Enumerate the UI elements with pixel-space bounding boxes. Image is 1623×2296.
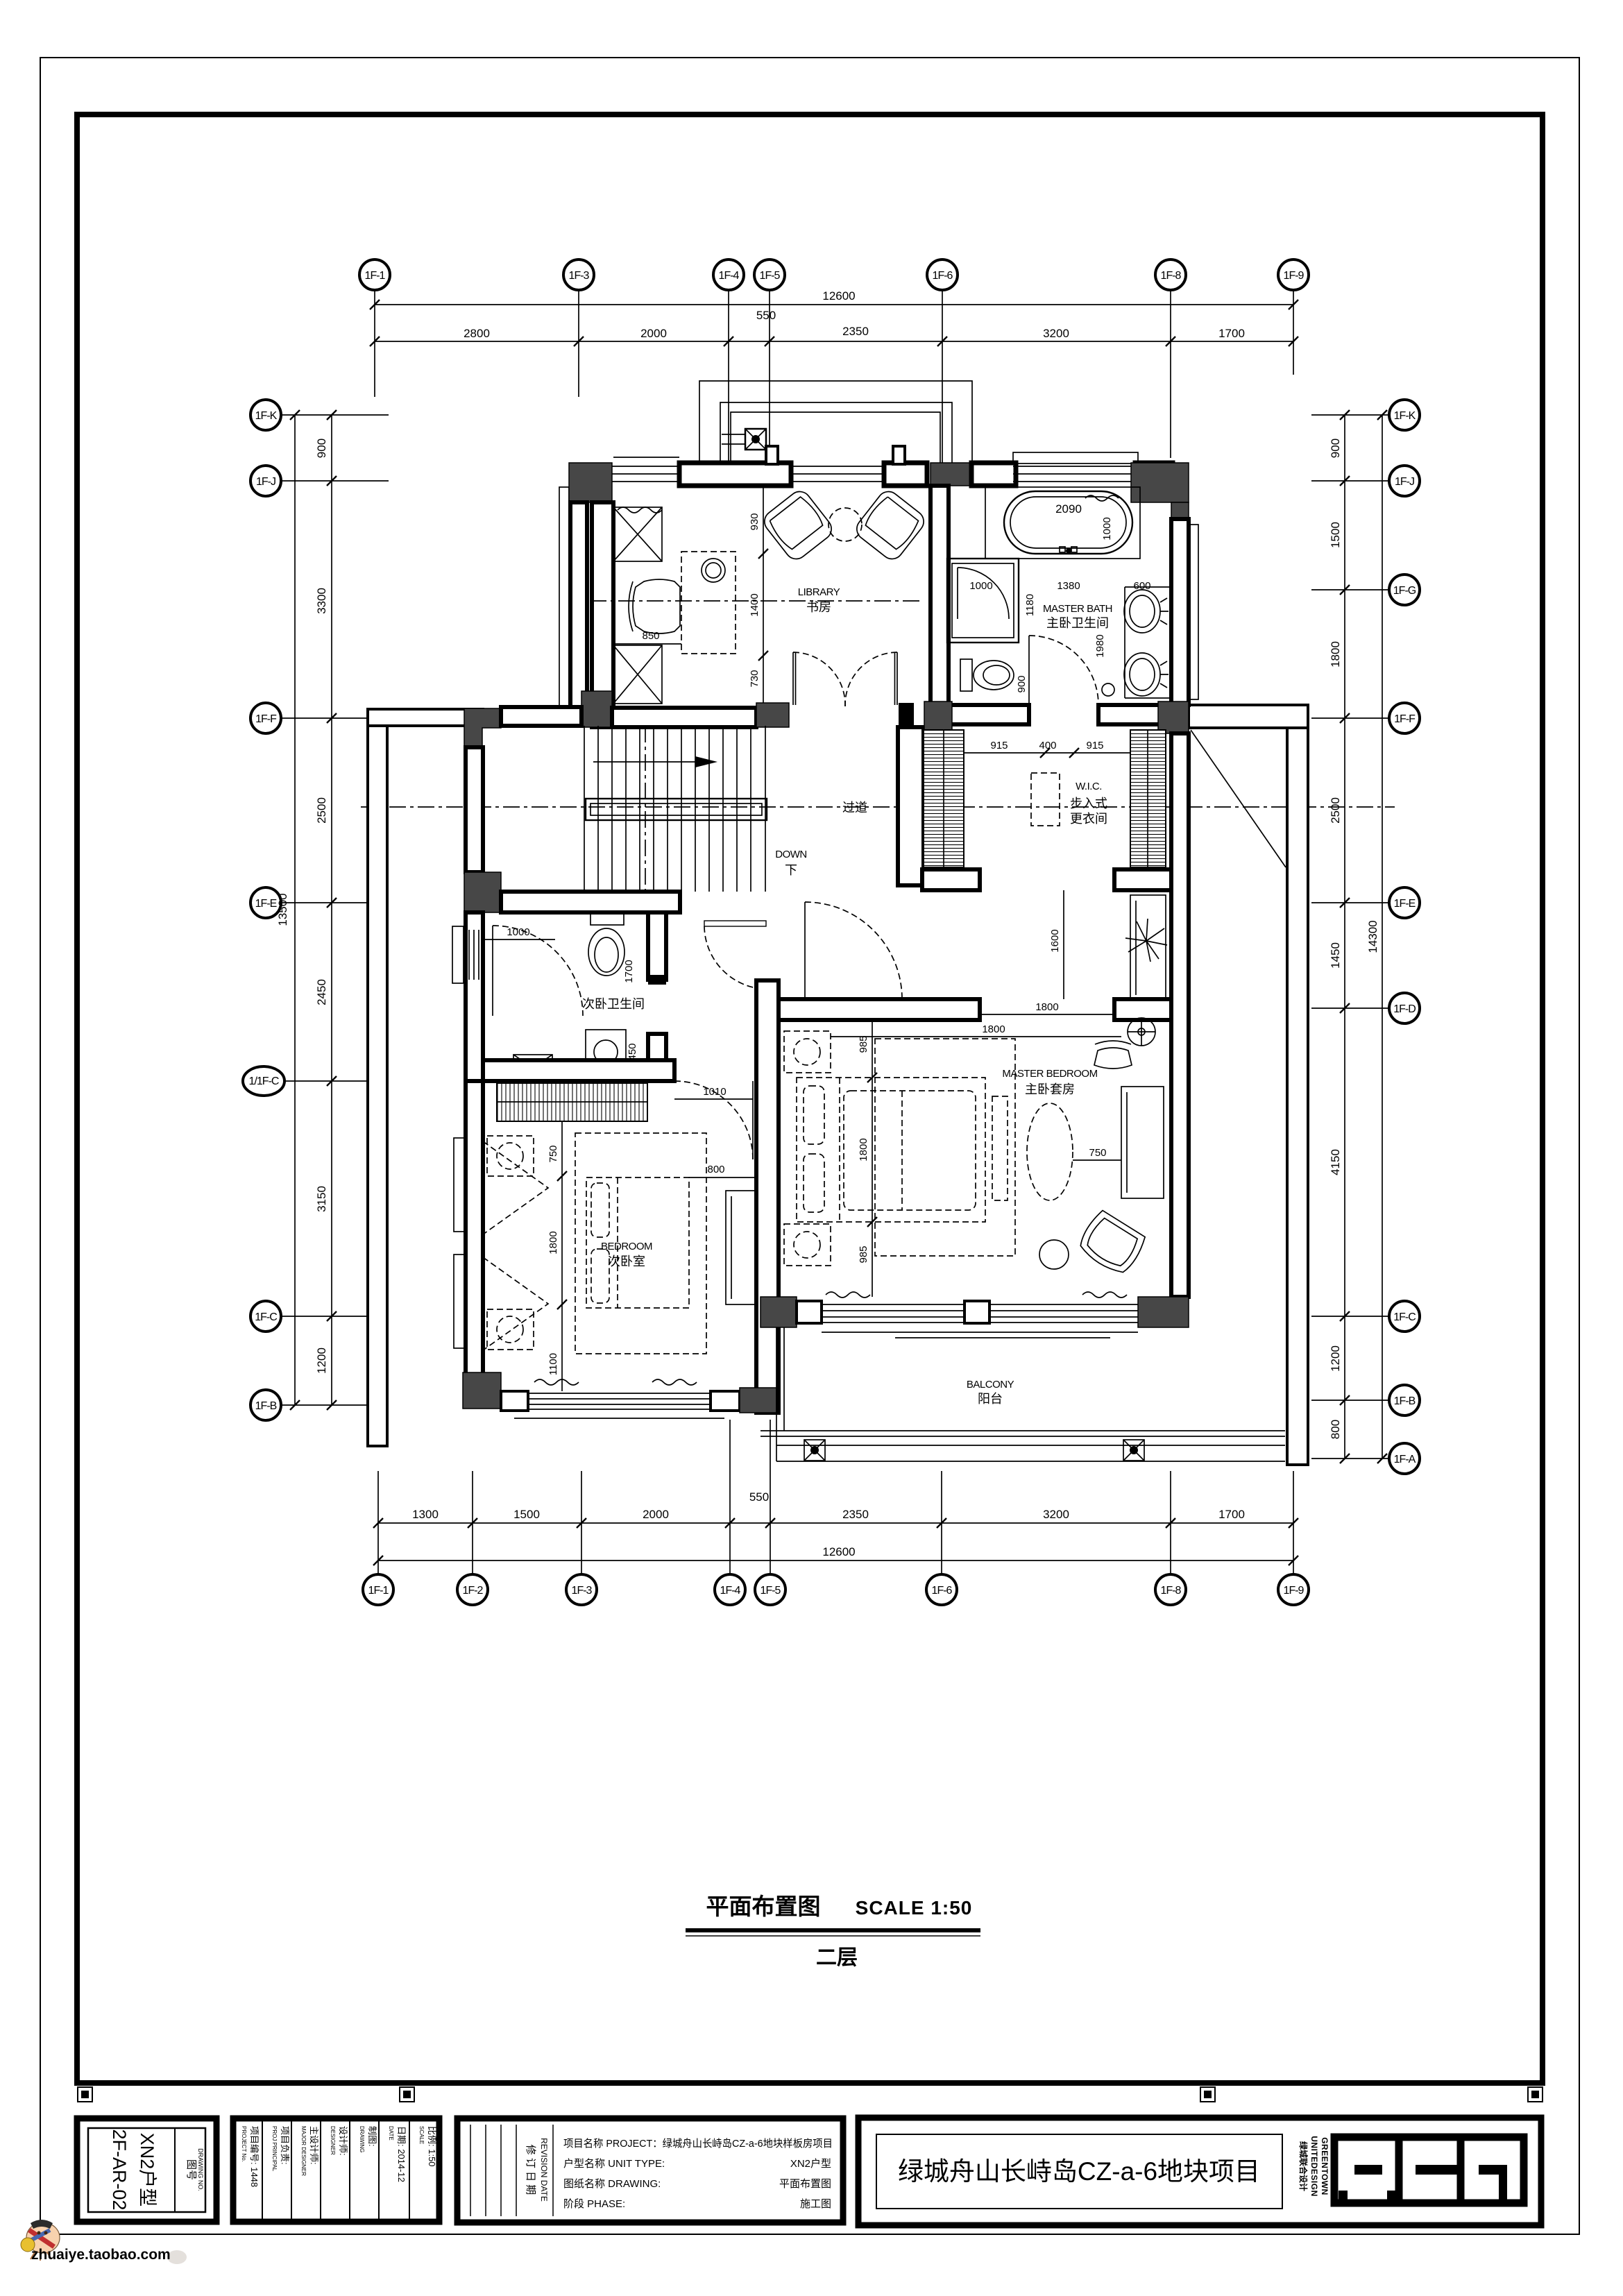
svg-text:1F-4: 1F-4: [719, 270, 740, 282]
svg-text:图号: 图号: [185, 2159, 197, 2180]
svg-text:修 订 日 期: 修 订 日 期: [525, 2145, 536, 2195]
svg-text:1F-E: 1F-E: [255, 898, 277, 910]
svg-text:主卧套房: 主卧套房: [1025, 1082, 1075, 1096]
svg-text:制图:: 制图:: [367, 2126, 377, 2147]
svg-text:DESIGNER: DESIGNER: [330, 2126, 336, 2155]
svg-text:1F-E: 1F-E: [1394, 898, 1416, 910]
svg-text:平面布置图: 平面布置图: [706, 1894, 821, 1919]
svg-text:930: 930: [749, 513, 760, 530]
svg-text:过道: 过道: [842, 801, 867, 815]
svg-text:1F-8: 1F-8: [1161, 270, 1182, 282]
svg-text:XN2户型: XN2户型: [790, 2158, 831, 2170]
svg-text:1F-K: 1F-K: [1394, 410, 1416, 422]
svg-text:1450: 1450: [1329, 942, 1342, 969]
svg-text:次卧室: 次卧室: [608, 1255, 645, 1268]
svg-text:DRAWING NO.: DRAWING NO.: [197, 2148, 204, 2191]
svg-text:12600: 12600: [822, 1545, 855, 1558]
svg-text:1800: 1800: [1035, 1001, 1058, 1013]
svg-text:1800: 1800: [547, 1231, 559, 1254]
svg-text:1/1F-C: 1/1F-C: [249, 1075, 279, 1087]
svg-text:2F-AR-02: 2F-AR-02: [109, 2129, 130, 2210]
svg-text:2000: 2000: [640, 327, 667, 340]
svg-text:800: 800: [707, 1164, 724, 1175]
svg-text:DATE: DATE: [388, 2126, 394, 2141]
svg-text:1F-J: 1F-J: [1395, 476, 1414, 488]
svg-text:1F-1: 1F-1: [368, 1585, 389, 1597]
svg-text:985: 985: [858, 1035, 869, 1053]
svg-text:1010: 1010: [703, 1086, 726, 1098]
svg-text:1F-6: 1F-6: [933, 270, 953, 282]
svg-text:3300: 3300: [315, 588, 328, 614]
svg-text:1400: 1400: [749, 593, 760, 616]
svg-text:PROJECT No.: PROJECT No.: [241, 2126, 247, 2162]
svg-text:1F-1: 1F-1: [365, 270, 386, 282]
svg-text:3200: 3200: [1043, 327, 1069, 340]
svg-text:1F-9: 1F-9: [1284, 270, 1305, 282]
svg-text:GREENTOWN: GREENTOWN: [1320, 2137, 1329, 2195]
svg-text:2350: 2350: [842, 1508, 869, 1521]
svg-text:绿城舟山长峙岛CZ-a-6地块项目: 绿城舟山长峙岛CZ-a-6地块项目: [898, 2157, 1260, 2186]
svg-text:下: 下: [785, 863, 797, 877]
svg-text:900: 900: [1016, 675, 1028, 692]
svg-text:1300: 1300: [412, 1508, 439, 1521]
svg-text:1000: 1000: [507, 926, 529, 938]
svg-text:绿城联合设计: 绿城联合设计: [1298, 2141, 1309, 2191]
svg-text:1380: 1380: [1057, 580, 1080, 592]
svg-text:2000: 2000: [643, 1508, 669, 1521]
svg-text:更衣间: 更衣间: [1070, 812, 1107, 826]
svg-text:1F-B: 1F-B: [1394, 1395, 1416, 1407]
svg-text:1F-F: 1F-F: [1394, 713, 1416, 725]
svg-text:次卧卫生间: 次卧卫生间: [582, 997, 645, 1011]
svg-text:2090: 2090: [1055, 502, 1082, 516]
svg-text:1F-G: 1F-G: [1393, 585, 1416, 597]
svg-text:4150: 4150: [1329, 1149, 1342, 1175]
svg-text:1700: 1700: [1218, 1508, 1245, 1521]
svg-text:400: 400: [1039, 740, 1056, 751]
svg-text:1200: 1200: [1329, 1345, 1342, 1372]
svg-text:1700: 1700: [1218, 327, 1245, 340]
svg-text:项目编号: 1448: 项目编号: 1448: [249, 2126, 260, 2187]
svg-text:MAJOR DESIGNER: MAJOR DESIGNER: [300, 2126, 307, 2176]
svg-text:1F-6: 1F-6: [932, 1585, 953, 1597]
svg-text:二层: 二层: [816, 1946, 858, 1969]
svg-text:DOWN: DOWN: [775, 849, 807, 860]
svg-text:1700: 1700: [623, 960, 635, 983]
svg-text:3200: 3200: [1043, 1508, 1069, 1521]
svg-text:1F-J: 1F-J: [256, 476, 275, 488]
svg-text:2500: 2500: [1329, 797, 1342, 824]
svg-text:SCALE 1:50: SCALE 1:50: [856, 1897, 973, 1919]
svg-text:2800: 2800: [464, 327, 490, 340]
svg-text:1600: 1600: [1049, 929, 1061, 952]
svg-text:阶段 PHASE:: 阶段 PHASE:: [563, 2198, 625, 2210]
svg-text:915: 915: [1086, 740, 1103, 751]
svg-text:1200: 1200: [315, 1347, 328, 1374]
svg-text:阳台: 阳台: [978, 1392, 1003, 1406]
svg-text:750: 750: [547, 1145, 559, 1162]
svg-text:REVISION DATE: REVISION DATE: [539, 2138, 549, 2202]
svg-text:550: 550: [749, 1490, 769, 1504]
svg-text:zhuaiye.taobao.com: zhuaiye.taobao.com: [31, 2247, 171, 2263]
svg-text:915: 915: [990, 740, 1008, 751]
svg-text:1F-C: 1F-C: [255, 1311, 277, 1323]
svg-text:比例: 1:50: 比例: 1:50: [427, 2126, 437, 2167]
svg-text:BALCONY: BALCONY: [967, 1379, 1014, 1391]
svg-text:施工图: 施工图: [800, 2198, 831, 2210]
svg-text:户型名称 UNIT TYPE:: 户型名称 UNIT TYPE:: [563, 2158, 665, 2170]
svg-text:900: 900: [1329, 439, 1342, 458]
svg-text:主设计师:: 主设计师:: [309, 2126, 319, 2165]
svg-text:1F-9: 1F-9: [1284, 1585, 1305, 1597]
svg-text:PROJ PRINCIPAL: PROJ PRINCIPAL: [271, 2126, 278, 2172]
svg-text:UNITEDESIGN: UNITEDESIGN: [1309, 2136, 1319, 2197]
svg-text:步入式: 步入式: [1070, 797, 1107, 810]
svg-text:1F-4: 1F-4: [720, 1585, 741, 1597]
svg-text:850: 850: [642, 630, 659, 642]
svg-text:600: 600: [1133, 580, 1150, 592]
svg-text:主卧卫生间: 主卧卫生间: [1046, 616, 1109, 630]
svg-text:1F-3: 1F-3: [572, 1585, 593, 1597]
svg-text:1500: 1500: [1329, 522, 1342, 548]
svg-text:1F-8: 1F-8: [1161, 1585, 1182, 1597]
svg-text:1F-F: 1F-F: [255, 713, 277, 725]
svg-text:1F-D: 1F-D: [1393, 1003, 1416, 1015]
svg-text:2500: 2500: [315, 797, 328, 824]
svg-text:900: 900: [315, 439, 328, 458]
svg-text:1F-2: 1F-2: [463, 1585, 484, 1597]
svg-text:1180: 1180: [1024, 594, 1036, 616]
svg-text:1800: 1800: [858, 1138, 869, 1161]
svg-text:1F-A: 1F-A: [1394, 1454, 1416, 1465]
svg-text:W.I.C.: W.I.C.: [1076, 781, 1102, 792]
svg-text:项目名称 PROJECT：绿城舟山长峙岛CZ-a-6地块样板: 项目名称 PROJECT：绿城舟山长峙岛CZ-a-6地块样板房项目: [563, 2137, 833, 2150]
svg-text:1800: 1800: [1329, 641, 1342, 667]
svg-text:985: 985: [858, 1245, 869, 1263]
svg-text:BEDROOM: BEDROOM: [601, 1241, 652, 1252]
svg-text:1F-5: 1F-5: [760, 270, 781, 282]
svg-text:书房: 书房: [806, 600, 831, 614]
svg-text:设计师:: 设计师:: [338, 2126, 348, 2156]
svg-text:1500: 1500: [513, 1508, 540, 1521]
svg-text:LIBRARY: LIBRARY: [798, 586, 840, 598]
svg-text:1000: 1000: [969, 580, 992, 592]
svg-text:1F-5: 1F-5: [760, 1585, 781, 1597]
svg-text:1800: 1800: [982, 1023, 1005, 1035]
svg-text:730: 730: [749, 670, 760, 687]
svg-text:550: 550: [756, 309, 776, 322]
svg-text:1F-K: 1F-K: [255, 410, 278, 422]
svg-text:3150: 3150: [315, 1186, 328, 1212]
svg-text:DRAWING: DRAWING: [359, 2126, 365, 2152]
svg-text:750: 750: [1089, 1147, 1106, 1159]
svg-text:2450: 2450: [315, 979, 328, 1005]
svg-text:450: 450: [627, 1043, 638, 1060]
svg-text:平面布置图: 平面布置图: [779, 2178, 831, 2190]
svg-text:1980: 1980: [1094, 634, 1106, 657]
svg-text:14300: 14300: [1366, 920, 1379, 953]
svg-text:13500: 13500: [276, 893, 289, 926]
svg-text:XN2户型: XN2户型: [137, 2133, 158, 2207]
svg-text:1000: 1000: [1101, 517, 1113, 540]
svg-text:图纸名称 DRAWING:: 图纸名称 DRAWING:: [563, 2178, 661, 2190]
svg-text:MASTER BATH: MASTER BATH: [1043, 603, 1112, 615]
svg-text:MASTER BEDROOM: MASTER BEDROOM: [1002, 1068, 1097, 1080]
svg-text:1F-B: 1F-B: [255, 1400, 277, 1412]
svg-text:1100: 1100: [547, 1353, 559, 1375]
svg-text:2350: 2350: [842, 325, 869, 338]
svg-text:800: 800: [1329, 1420, 1342, 1439]
svg-text:SCALE: SCALE: [418, 2126, 425, 2144]
svg-text:项目负责:: 项目负责:: [280, 2126, 290, 2165]
svg-text:12600: 12600: [822, 289, 855, 303]
svg-text:1F-3: 1F-3: [569, 270, 590, 282]
svg-text:日期: 2014-12: 日期: 2014-12: [396, 2126, 407, 2182]
svg-text:1F-C: 1F-C: [1393, 1311, 1416, 1323]
